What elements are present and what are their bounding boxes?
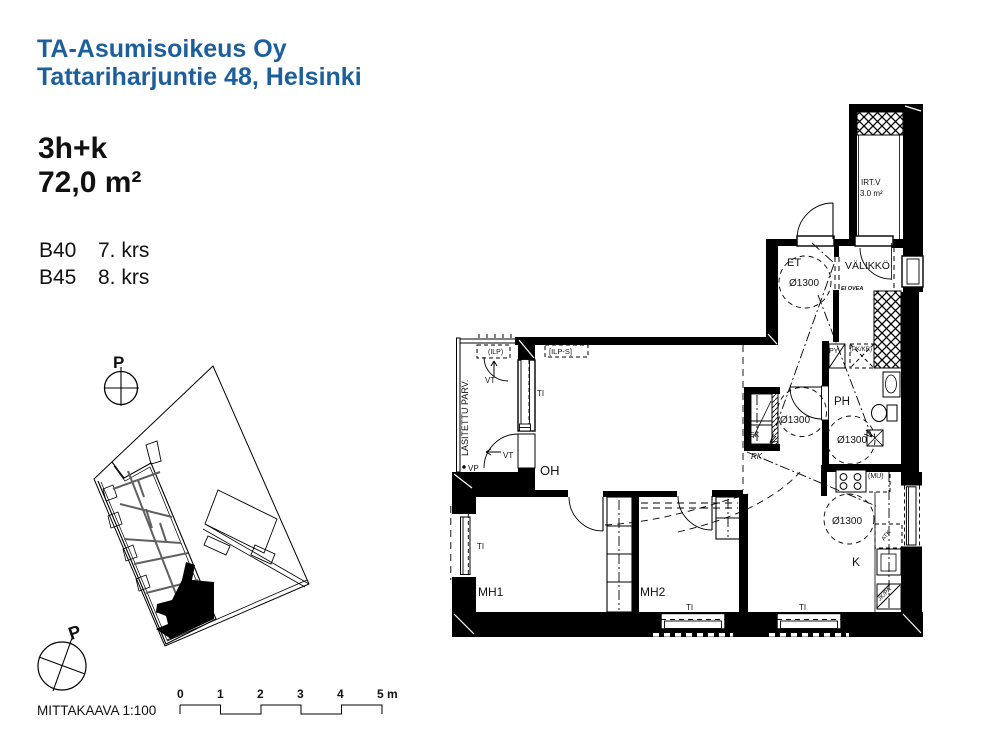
svg-text:Ø1300: Ø1300 xyxy=(789,278,819,289)
svg-text:P: P xyxy=(66,621,84,644)
svg-text:3.0 m²: 3.0 m² xyxy=(860,189,883,198)
svg-text:3: 3 xyxy=(297,687,304,701)
svg-text:MH1: MH1 xyxy=(478,585,504,599)
svg-text:VÄLIKKÖ: VÄLIKKÖ xyxy=(845,260,890,272)
svg-text:TI: TI xyxy=(799,603,806,612)
svg-text:2: 2 xyxy=(257,687,264,701)
svg-text:VT: VT xyxy=(503,451,513,460)
svg-text:(ILP): (ILP) xyxy=(488,349,503,356)
svg-text:[ILP-S]: [ILP-S] xyxy=(549,347,572,356)
svg-text:1: 1 xyxy=(217,687,224,701)
svg-text:IRT.V: IRT.V xyxy=(861,178,881,187)
svg-text:Ø1300: Ø1300 xyxy=(837,435,867,446)
svg-text:P: P xyxy=(113,353,124,372)
svg-text:PH: PH xyxy=(834,396,850,408)
svg-text:RK: RK xyxy=(751,452,763,461)
svg-text:Ø1300: Ø1300 xyxy=(780,415,810,426)
svg-text:MH2: MH2 xyxy=(640,585,666,599)
svg-text:5 m: 5 m xyxy=(377,687,398,701)
svg-text:OH: OH xyxy=(540,463,560,478)
svg-text:VP: VP xyxy=(468,464,479,473)
svg-text:EI OVEA: EI OVEA xyxy=(841,286,863,292)
svg-text:PY: PY xyxy=(829,348,839,355)
svg-text:Ø1300: Ø1300 xyxy=(832,516,862,527)
svg-text:TI: TI xyxy=(477,542,484,551)
svg-text:0: 0 xyxy=(177,687,184,701)
svg-text:4: 4 xyxy=(337,687,344,701)
svg-text:K: K xyxy=(852,555,860,569)
svg-text:MITTAKAAVA 1:100: MITTAKAAVA 1:100 xyxy=(37,703,156,718)
svg-text:SK: SK xyxy=(750,432,760,439)
svg-text:VT: VT xyxy=(485,376,495,385)
svg-text:TI: TI xyxy=(537,389,544,398)
svg-text:(PK/KR): (PK/KR) xyxy=(850,347,872,353)
svg-text:(MU): (MU) xyxy=(868,473,884,480)
svg-text:ATK: ATK xyxy=(881,530,893,543)
svg-text:ET: ET xyxy=(787,257,801,269)
svg-text:LASITETTU PARV.: LASITETTU PARV. xyxy=(460,380,470,456)
svg-text:TI: TI xyxy=(686,603,693,612)
